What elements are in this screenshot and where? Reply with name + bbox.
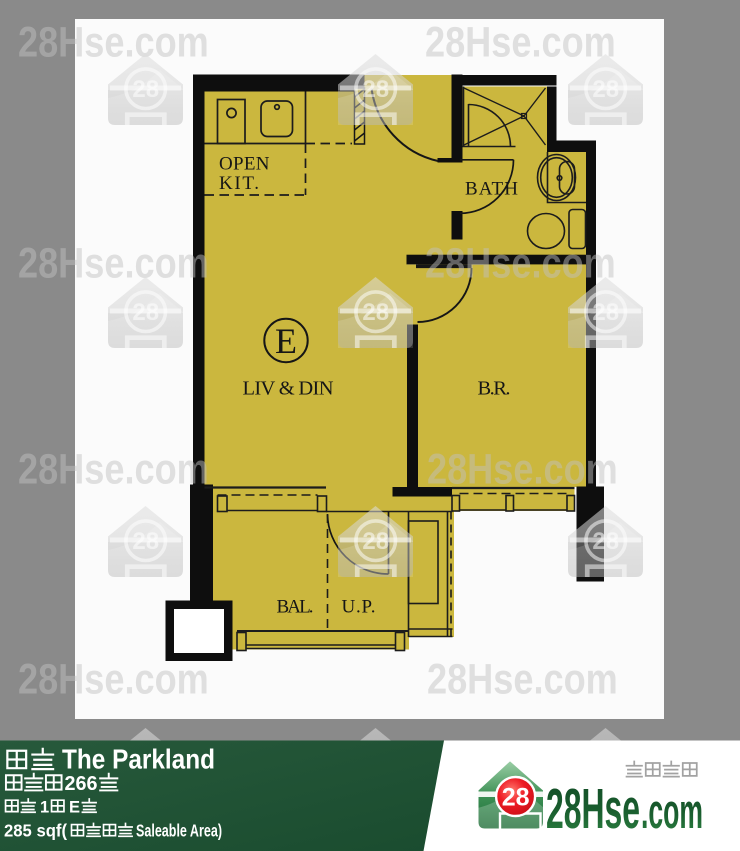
svg-text:E: E <box>275 321 297 361</box>
svg-text:E: E <box>69 799 80 817</box>
svg-text:28Hse.com: 28Hse.com <box>18 240 209 287</box>
svg-text:28Hse.com: 28Hse.com <box>427 446 618 493</box>
svg-text:285 sqf(: 285 sqf( <box>4 821 67 841</box>
svg-text:28: 28 <box>502 784 530 812</box>
svg-text:28Hse.com: 28Hse.com <box>427 656 618 703</box>
svg-text:BAL.: BAL. <box>277 597 314 618</box>
svg-text:266: 266 <box>65 772 98 795</box>
svg-text:1: 1 <box>40 799 49 817</box>
svg-text:The Parkland: The Parkland <box>62 744 215 775</box>
svg-text:BATH: BATH <box>465 179 518 200</box>
svg-text:LIV & DIN: LIV & DIN <box>243 378 334 400</box>
svg-text:B.R.: B.R. <box>478 378 511 400</box>
svg-text:.com: .com <box>641 785 703 839</box>
svg-text:28Hse: 28Hse <box>546 777 640 841</box>
svg-text:Saleable Area): Saleable Area) <box>136 821 222 841</box>
svg-text:U.P.: U.P. <box>342 597 376 618</box>
svg-text:28Hse.com: 28Hse.com <box>18 446 209 493</box>
svg-text:28Hse.com: 28Hse.com <box>425 19 616 66</box>
svg-text:28Hse.com: 28Hse.com <box>18 19 209 66</box>
svg-text:28Hse.com: 28Hse.com <box>18 656 209 703</box>
svg-text:OPEN: OPEN <box>219 154 270 175</box>
svg-text:28Hse.com: 28Hse.com <box>425 240 616 287</box>
